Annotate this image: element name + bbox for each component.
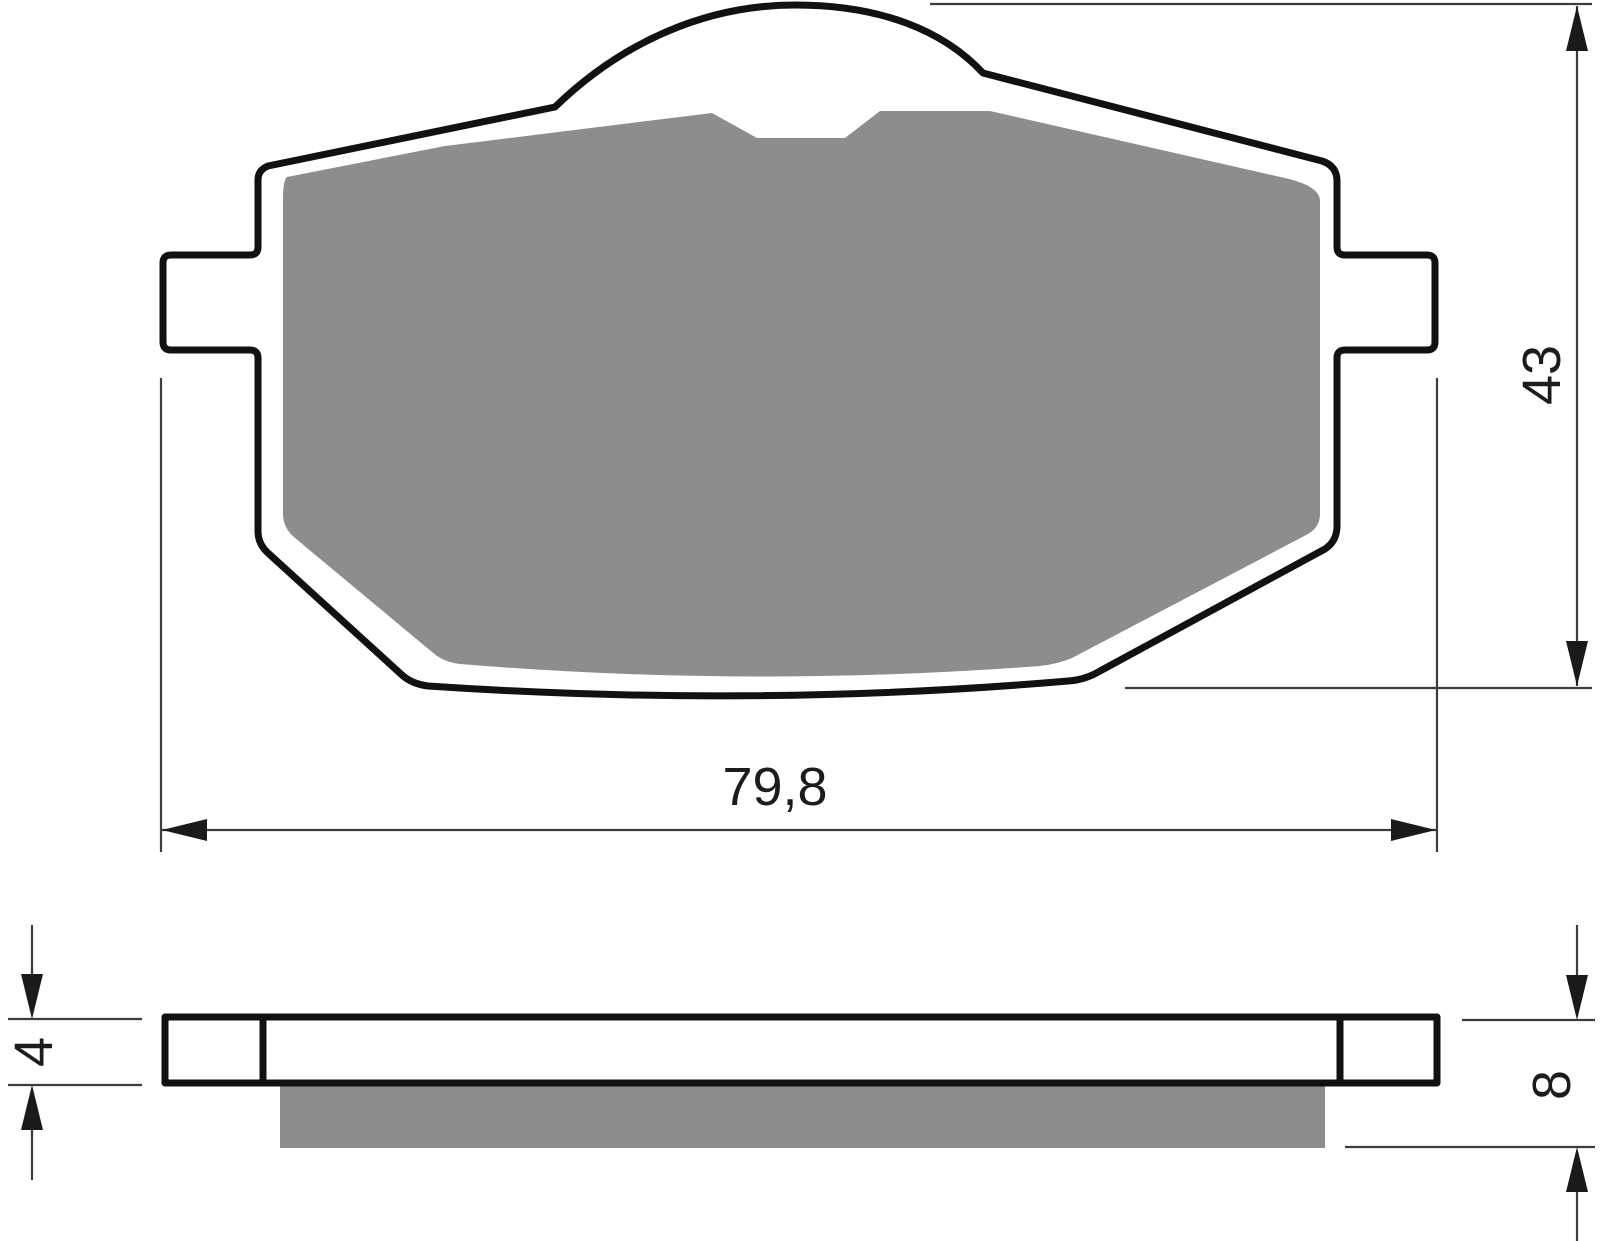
dimension-label-total-thickness: 8 — [1522, 1070, 1582, 1100]
dimension-label-plate-thickness: 4 — [4, 1037, 64, 1067]
top-view — [163, 5, 1435, 696]
side-friction-material — [280, 1081, 1325, 1148]
arrowhead-down — [1566, 641, 1588, 686]
technical-drawing-canvas: 79,8 43 4 8 — [0, 0, 1600, 1241]
arrowhead-up — [1566, 1147, 1588, 1192]
dimension-label-width: 79,8 — [722, 757, 827, 817]
friction-material — [283, 111, 1320, 677]
dimension-plate-thickness: 4 — [4, 925, 142, 1180]
arrowhead-left — [162, 819, 207, 841]
arrowhead-down — [1566, 975, 1588, 1020]
arrowhead-right — [1391, 819, 1436, 841]
side-view — [165, 1017, 1437, 1148]
arrowhead-down — [21, 974, 43, 1019]
side-backing-plate — [165, 1017, 1437, 1083]
dimension-label-height: 43 — [1512, 345, 1572, 405]
arrowhead-up — [21, 1085, 43, 1130]
brake-pad-drawing: 79,8 43 4 8 — [0, 0, 1600, 1241]
arrowhead-up — [1566, 6, 1588, 51]
